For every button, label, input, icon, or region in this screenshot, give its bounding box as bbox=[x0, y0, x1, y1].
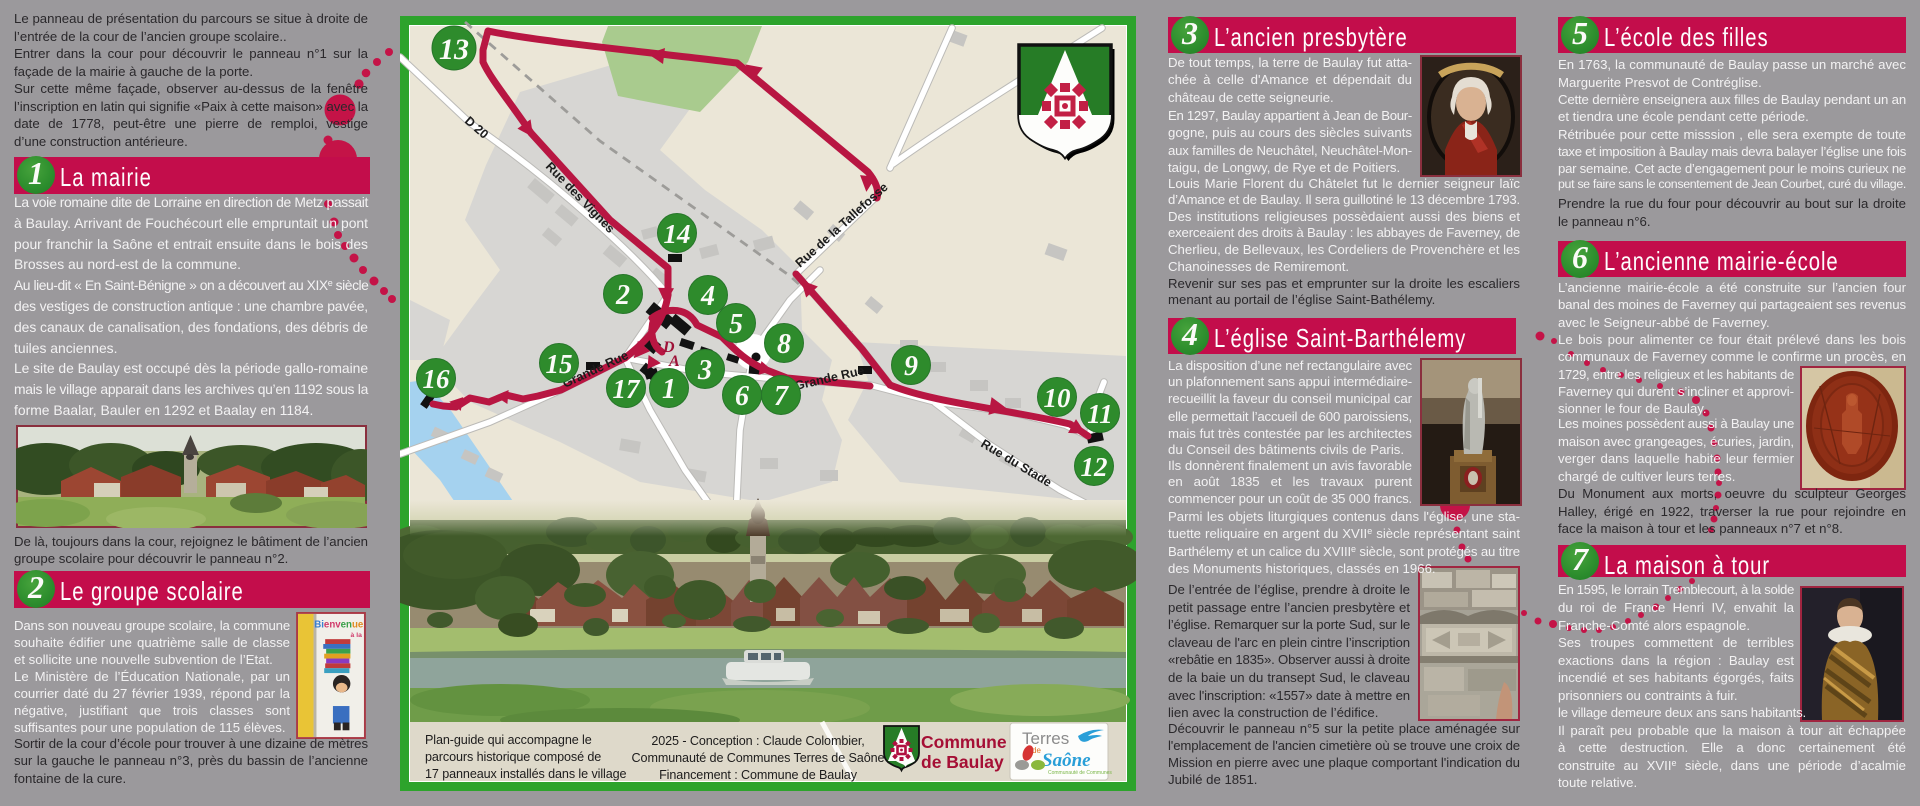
svg-text:Bienvenue: Bienvenue bbox=[314, 620, 364, 631]
svg-text:à la: à la bbox=[351, 632, 363, 639]
